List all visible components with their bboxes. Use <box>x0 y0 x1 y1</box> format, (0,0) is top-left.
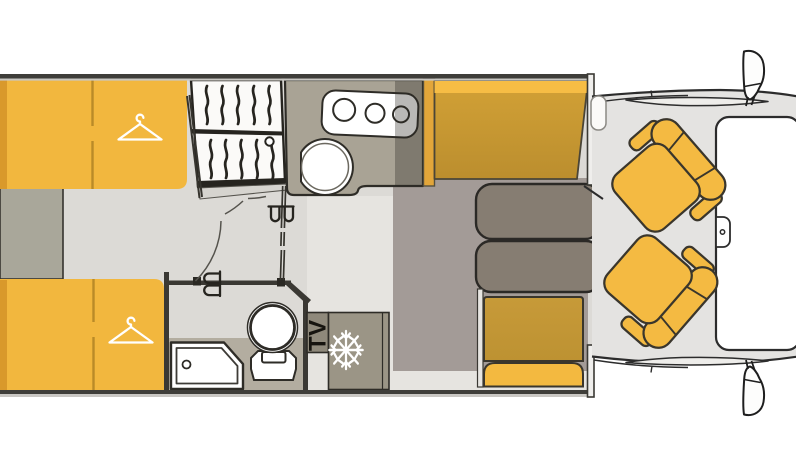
svg-text:TV: TV <box>305 319 332 351</box>
